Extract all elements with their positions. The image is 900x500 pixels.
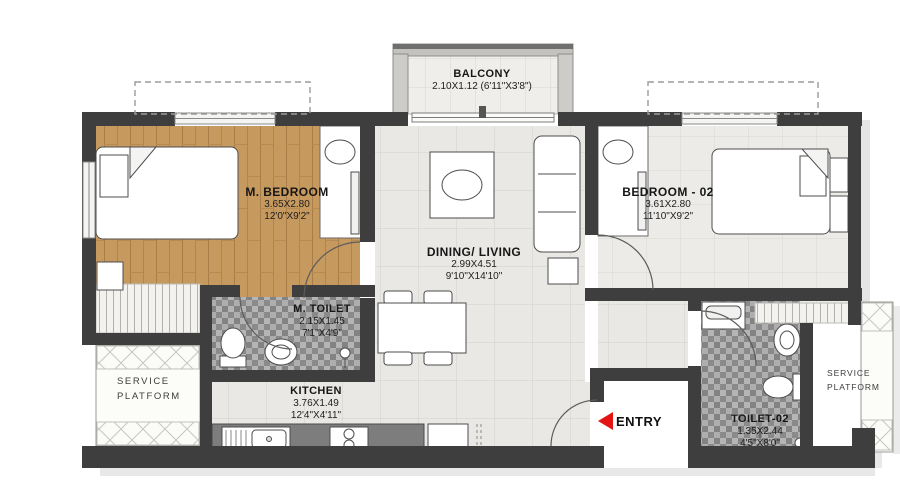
bedroom-02-nightstand: [830, 158, 848, 192]
bedroom-02-nightstand: [830, 196, 848, 232]
room-dim-ft: 12'0"X9'2": [245, 211, 328, 223]
label-master-bedroom: M. BEDROOM 3.65X2.80 12'0"X9'2": [245, 186, 328, 222]
bedroom-02-washbasin: [603, 140, 633, 164]
room-dim-ft: 9'10"X14'10": [427, 271, 521, 283]
floor-plan: BALCONY 2.10X1.12 (6'11"X3'8") M. BEDROO…: [0, 0, 900, 500]
service-platform-line2: PLATFORM: [117, 389, 181, 404]
room-dim-m: 3.65X2.80: [245, 199, 328, 211]
label-bedroom-02: BEDROOM - 02 3.61X2.80 11'10"X9'2": [622, 186, 713, 222]
label-toilet-02: TOILET-02 1.35X2.44 4'5"X8'0": [731, 413, 789, 449]
room-dim-m: 3.76X1.49: [290, 398, 342, 410]
room-dim-m: 2.15X1.45: [293, 316, 351, 328]
label-balcony: BALCONY 2.10X1.12 (6'11"X3'8"): [432, 68, 532, 93]
room-name: M. BEDROOM: [245, 186, 328, 199]
master-toilet-basin: [265, 339, 297, 365]
room-name: DINING/ LIVING: [427, 246, 521, 259]
master-wardrobe: [351, 172, 359, 234]
room-dim-m: 2.99X4.51: [427, 259, 521, 271]
master-bed-pillow: [100, 155, 128, 197]
service-platform-line2: PLATFORM: [827, 380, 880, 394]
master-washbasin: [325, 140, 355, 164]
left-ledge: [96, 284, 200, 333]
room-name: TOILET-02: [731, 413, 789, 426]
dining-table: [378, 303, 466, 353]
side-table: [548, 258, 578, 284]
label-service-platform-left: SERVICE PLATFORM: [117, 374, 181, 404]
coffee-table-decor: [442, 170, 482, 200]
room-dim-m: 1.35X2.44: [731, 426, 789, 438]
sofa: [534, 136, 580, 252]
room-name: BEDROOM - 02: [622, 186, 713, 199]
right-ledge: [755, 303, 856, 323]
service-platform-line1: SERVICE: [117, 374, 181, 389]
label-dining-living: DINING/ LIVING 2.99X4.51 9'10"X14'10": [427, 246, 521, 282]
room-dim-ft: 4'5"X8'0": [731, 438, 789, 450]
room-name: M. TOILET: [293, 303, 351, 316]
dining-chair: [424, 352, 452, 365]
room-dim-ft: 11'10"X9'2": [622, 211, 713, 223]
dining-chair: [384, 291, 412, 304]
room-name: BALCONY: [432, 68, 532, 81]
toilet-02-basin: [774, 324, 800, 356]
entry-arrow-icon: [598, 412, 613, 430]
room-dim-m: 3.61X2.80: [622, 199, 713, 211]
right-projection: [648, 82, 818, 114]
label-kitchen: KITCHEN 3.76X1.49 12'4"X4'11": [290, 385, 342, 421]
passage-floor: [598, 301, 688, 368]
service-platform-line1: SERVICE: [827, 366, 880, 380]
label-service-platform-right: SERVICE PLATFORM: [827, 366, 880, 394]
left-projection: [135, 82, 310, 114]
room-dim-ft: 7'1"X4'9": [293, 328, 351, 340]
room-dim: 2.10X1.12 (6'11"X3'8"): [432, 81, 532, 93]
dining-chair: [424, 291, 452, 304]
master-shower: [340, 348, 350, 358]
dining-chair: [384, 352, 412, 365]
entry-marker: ENTRY: [598, 412, 662, 430]
room-dim-ft: 12'4"X4'11": [290, 410, 342, 422]
label-master-toilet: M. TOILET 2.15X1.45 7'1"X4'9": [293, 303, 351, 339]
toilet-02-wc: [763, 376, 793, 398]
master-nightstand: [97, 262, 123, 290]
room-name: KITCHEN: [290, 385, 342, 398]
entry-label: ENTRY: [616, 414, 662, 429]
master-wc: [221, 328, 245, 358]
